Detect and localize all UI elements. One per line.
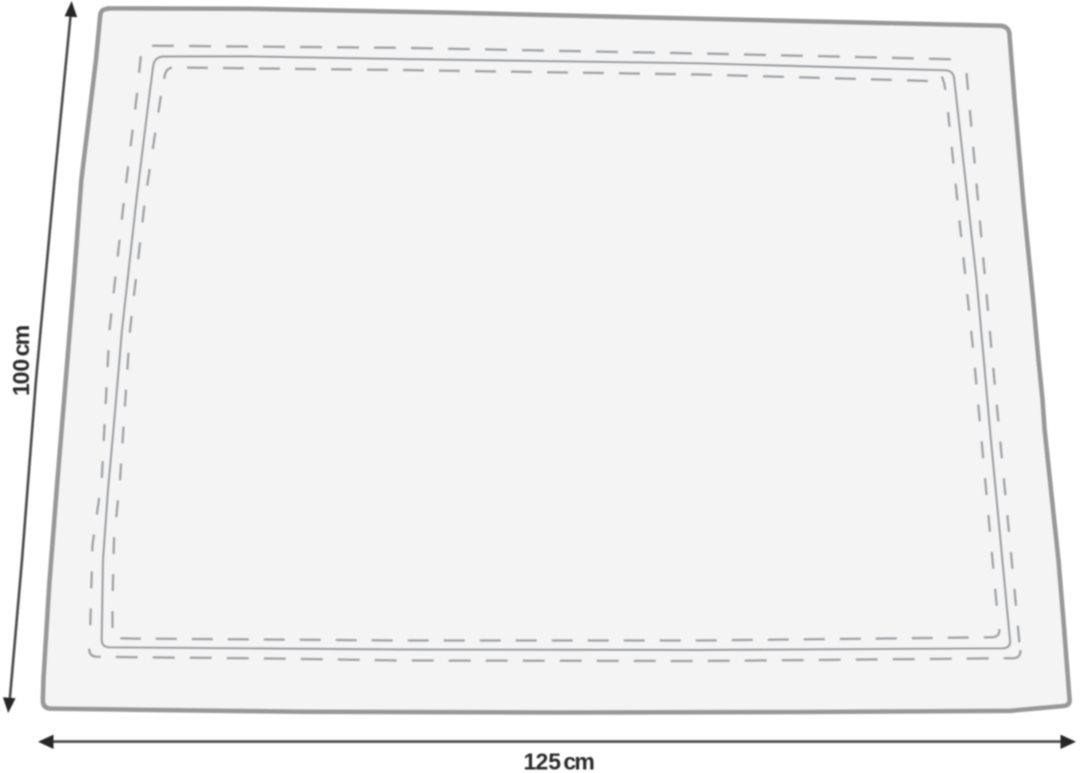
svg-text:100cm: 100cm (8, 325, 34, 396)
svg-text:125cm: 125cm (524, 748, 595, 773)
